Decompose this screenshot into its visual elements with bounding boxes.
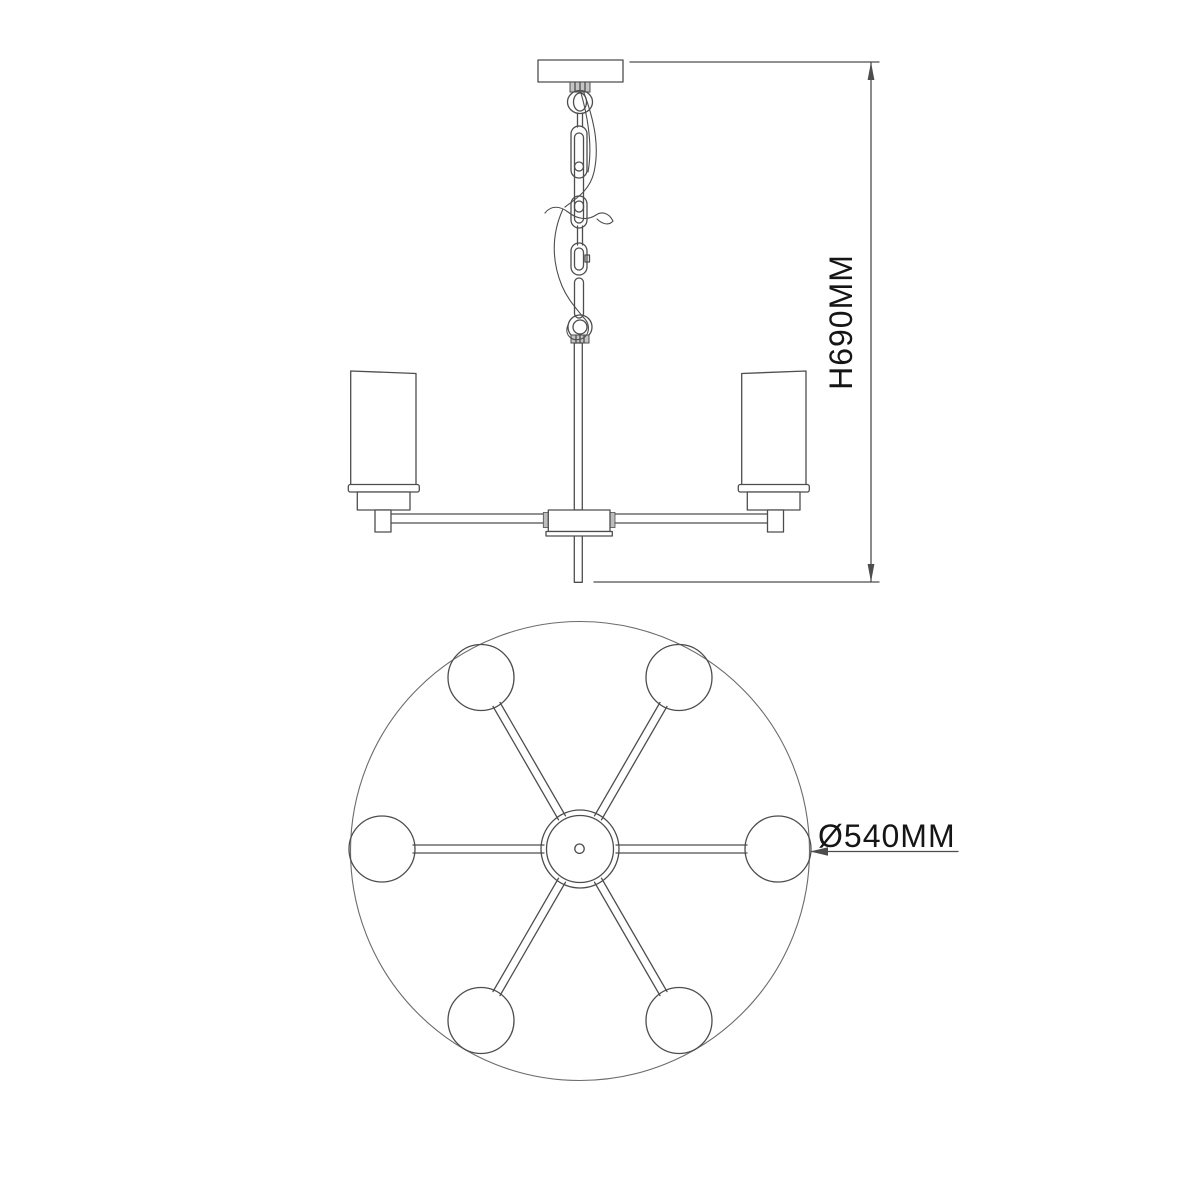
rod-lower-segment [574, 536, 582, 583]
bottom-hook-ring-inner [573, 320, 587, 334]
plan-arm-line [602, 706, 668, 819]
hub-outer-circle [541, 810, 619, 888]
plan-arm-line [493, 706, 559, 819]
plan-arm-line [500, 882, 566, 995]
top-hook-ring [568, 91, 593, 114]
chain-link-inner [575, 133, 584, 171]
plan-shades [349, 645, 811, 1054]
hub-inner-circle [547, 816, 614, 883]
shade-rim [738, 485, 809, 493]
cord-strand [554, 209, 583, 317]
height-dimension-label: H690MM [823, 254, 859, 390]
ceiling-canopy [538, 60, 623, 82]
rod-upper-segment [574, 343, 582, 510]
cord-knot [545, 207, 613, 224]
diameter-dimension-label: Ø540MM [818, 818, 956, 854]
shade-cylinder [742, 371, 806, 485]
hub-left-ferrule [543, 513, 548, 528]
lamp-socket [357, 492, 410, 510]
arrowhead-up [868, 62, 875, 80]
dimension-drawing: H690MM [0, 0, 1200, 1200]
shade-circle [448, 988, 514, 1054]
plan-arms [413, 702, 747, 995]
arm-end-stub [375, 510, 391, 532]
shade-circle [646, 988, 712, 1054]
shade-circle [349, 816, 415, 882]
hub-center-hole [575, 844, 584, 853]
shade-circle [745, 816, 811, 882]
right-arm-assembly [610, 371, 809, 532]
arm-end-stub [768, 510, 784, 532]
left-arm-assembly [348, 371, 548, 532]
plan-arm-line [500, 702, 566, 815]
chain-link-inner [575, 248, 584, 270]
plan-arm-line [602, 878, 668, 991]
chain-link [571, 126, 587, 178]
center-rod [574, 343, 582, 582]
hub-right-ferrule [610, 513, 615, 528]
plan-arm-line [493, 878, 559, 991]
shade-cylinder [351, 371, 416, 485]
side-elevation-view [348, 60, 809, 582]
height-dimension: H690MM [594, 62, 879, 582]
suspension-chain [545, 82, 613, 343]
fixture-outline-circle [351, 622, 810, 1081]
arrowhead-down [868, 564, 875, 582]
hub-bottom-lip [546, 532, 612, 537]
shade-circle [448, 645, 514, 711]
plan-arm-line [595, 882, 661, 995]
shade-circle [646, 645, 712, 711]
plan-view [349, 622, 811, 1081]
lamp-socket [747, 492, 800, 510]
shade-rim [348, 485, 419, 493]
center-hub [543, 510, 615, 536]
power-cord [545, 93, 613, 340]
diameter-dimension: Ø540MM [810, 818, 958, 856]
cord-strand [565, 93, 596, 207]
plan-arm-line [595, 702, 661, 815]
plan-hub [541, 810, 619, 888]
hub-body [548, 510, 610, 532]
